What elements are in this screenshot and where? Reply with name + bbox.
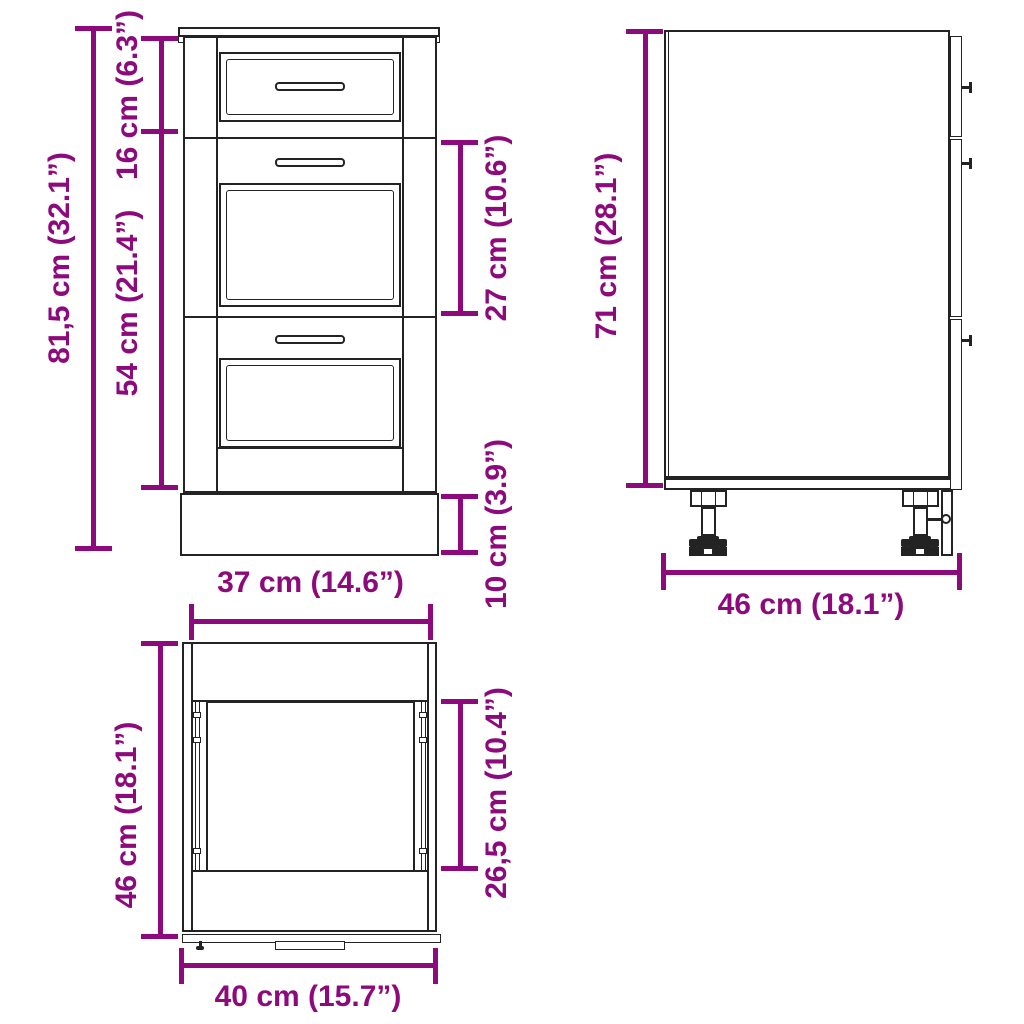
cabinet-dimension-diagram: 81,5 cm (32.1”) 16 cm (6.3”) 54 cm (21.4… [0, 0, 1024, 1024]
dim-inner-depth-tick-bottom [441, 866, 478, 871]
dim-top-width-label: 40 cm (15.7”) [181, 980, 435, 1015]
dim-top-depth-line [158, 644, 163, 937]
dim-inner-depth-line [458, 701, 463, 869]
top-view-dimensions: 46 cm (18.1”) 26,5 cm (10.4”) 40 cm (15.… [0, 0, 1024, 1024]
dim-top-width-tick-right [433, 948, 438, 984]
dim-top-width-line [181, 963, 435, 968]
dim-top-width-tick-left [179, 948, 184, 984]
dim-inner-depth-label: 26,5 cm (10.4”) [480, 687, 515, 899]
dim-inner-depth-tick-top [441, 699, 478, 704]
dim-top-depth-tick-top [141, 641, 178, 646]
dim-top-depth-label: 46 cm (18.1”) [110, 722, 145, 909]
dim-top-depth-tick-bottom [141, 934, 178, 939]
